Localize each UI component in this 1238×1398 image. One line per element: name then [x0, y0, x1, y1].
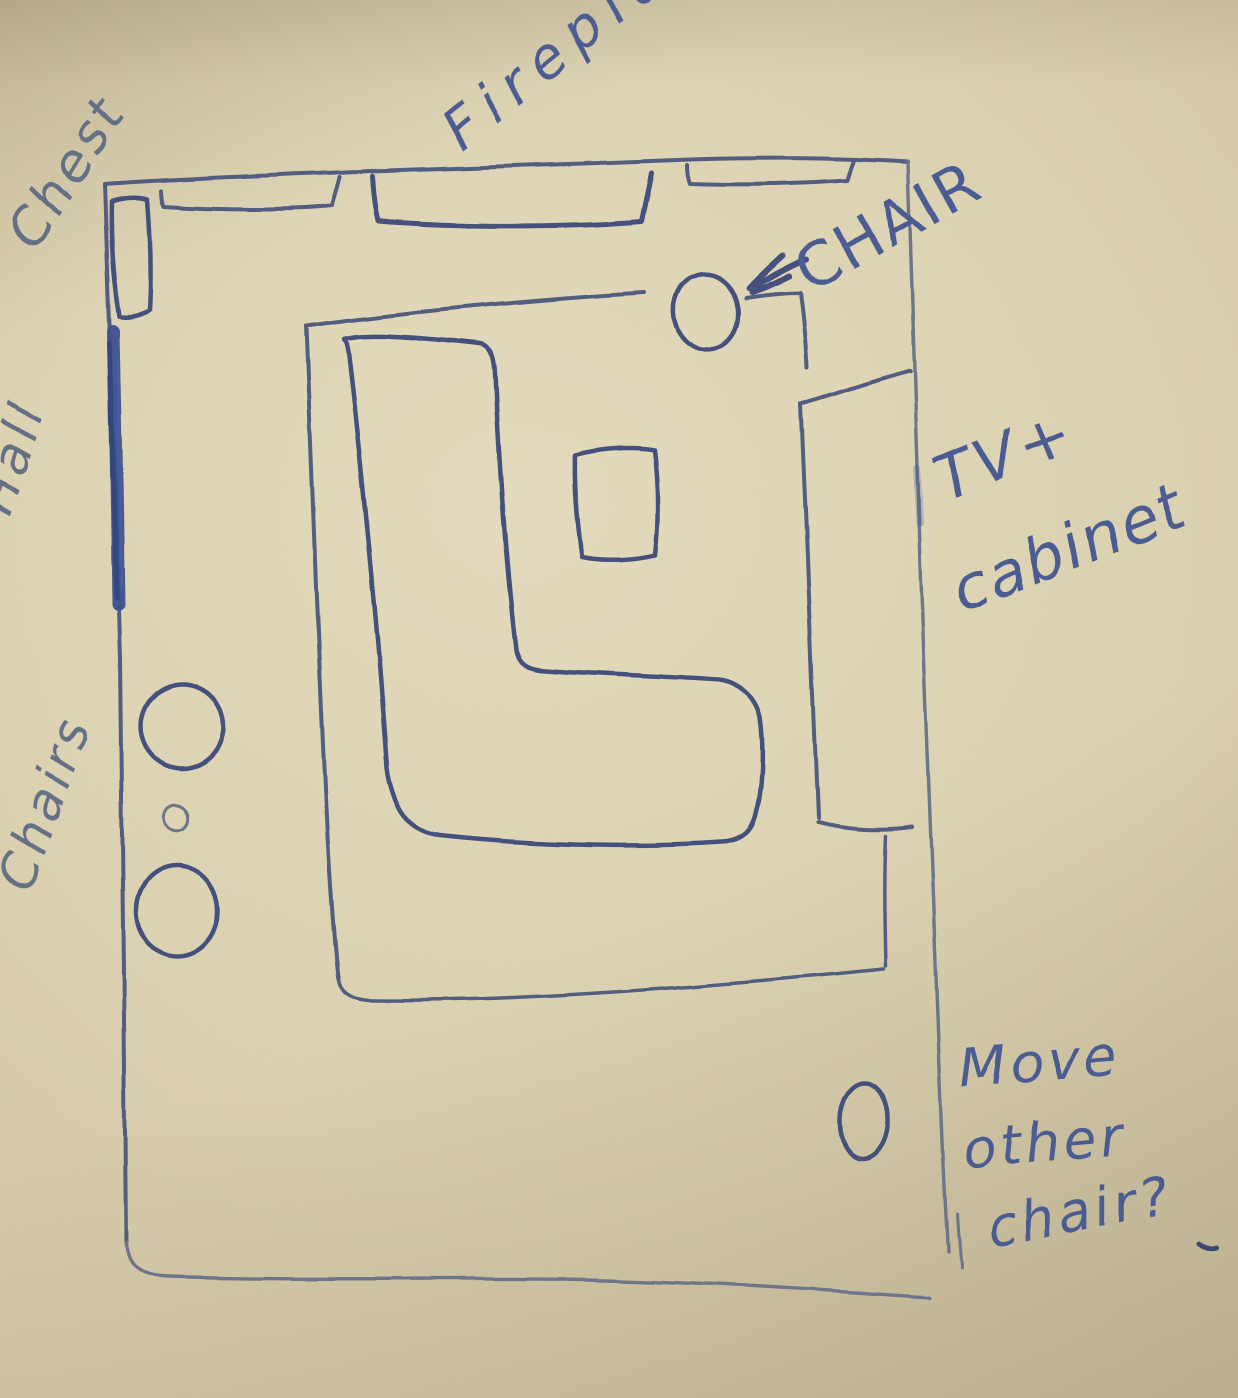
paper-sheet: Chest Fireplace CHAIR TV+ cabinet Hall C…	[0, 0, 1238, 1398]
wall-ink-smudge	[917, 468, 920, 522]
rug-right-edge-lower	[885, 836, 886, 966]
floorplan-sketch: Chest Fireplace CHAIR TV+ cabinet Hall C…	[0, 0, 1238, 1398]
note-line1: Move	[958, 1025, 1123, 1099]
